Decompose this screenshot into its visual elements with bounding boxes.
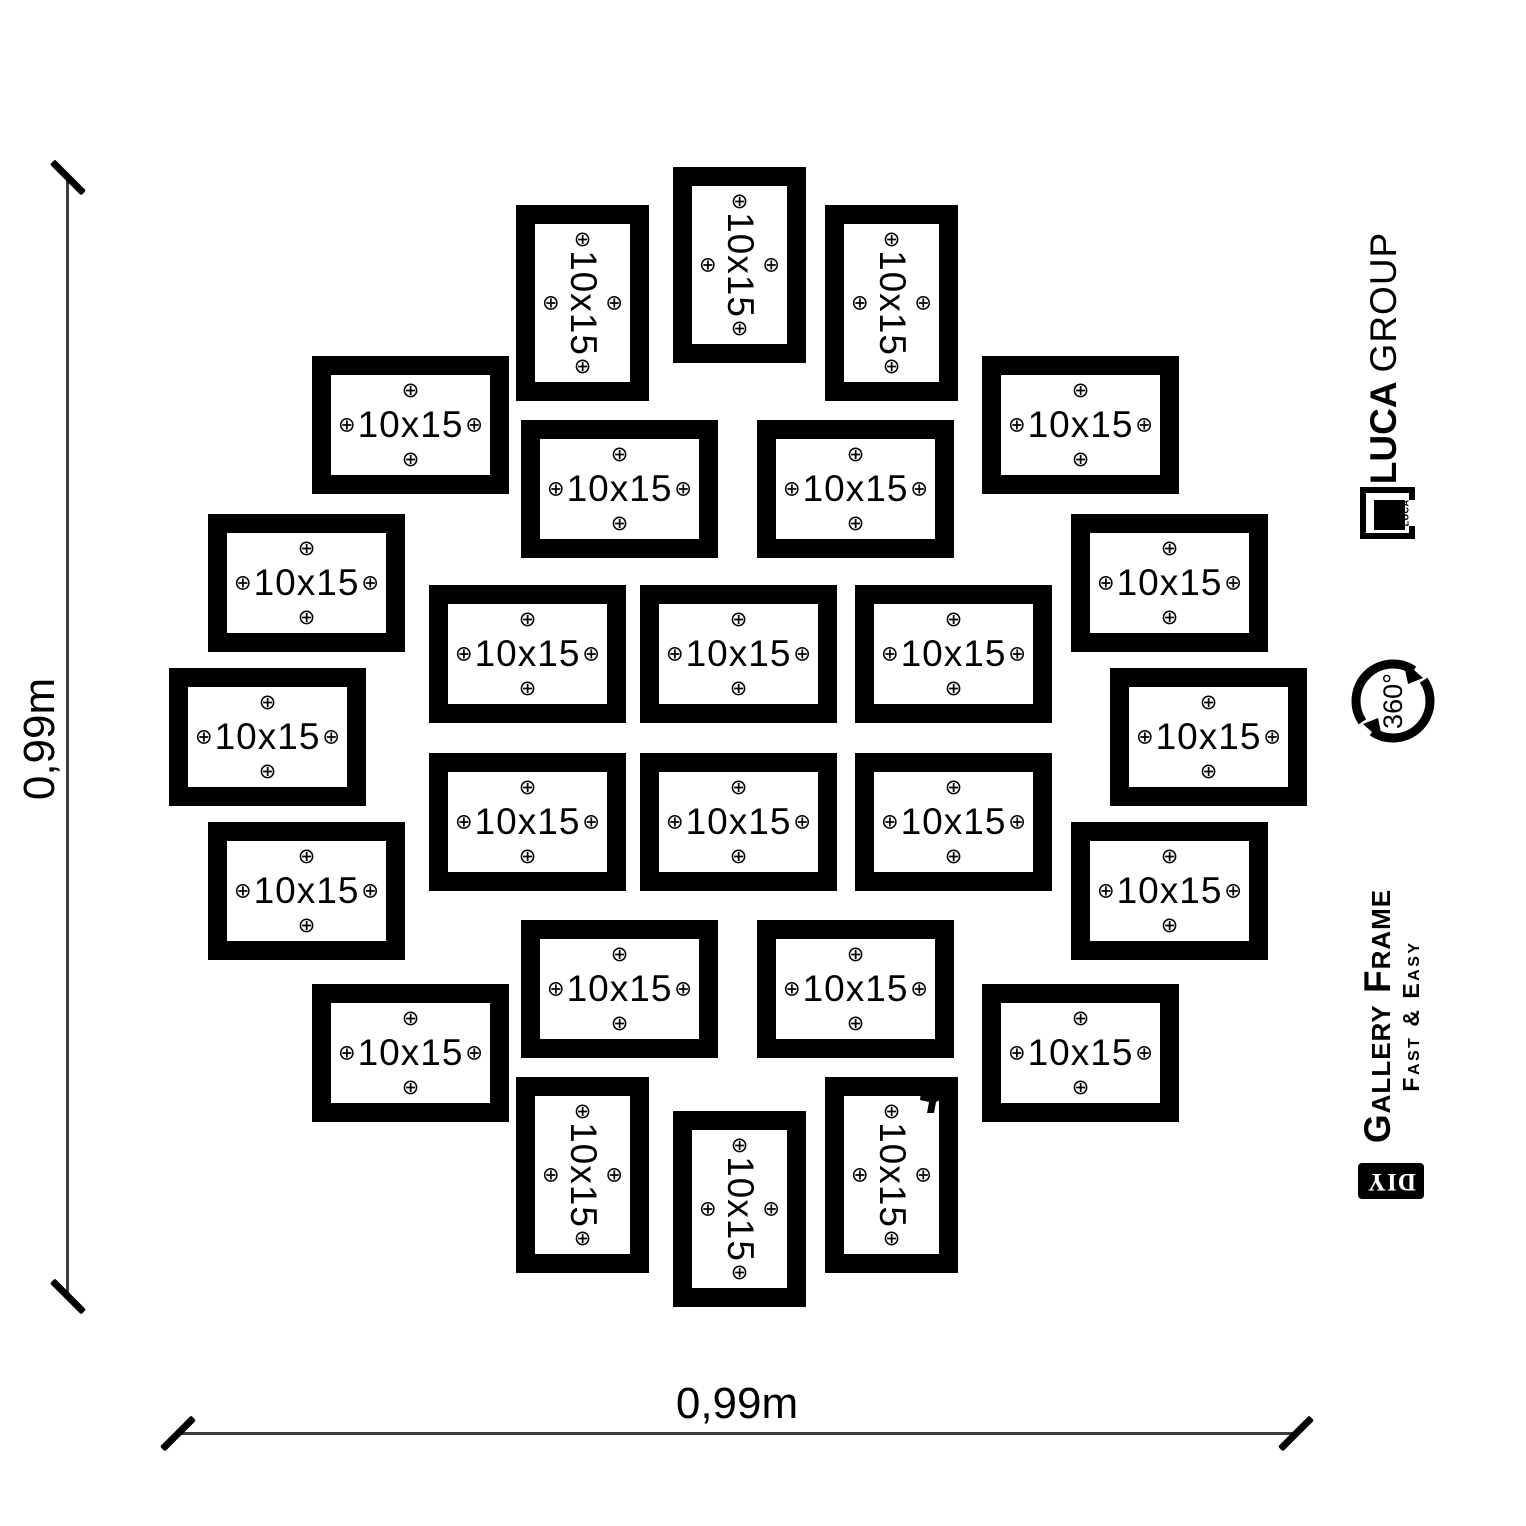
photo-frame-portrait: ⊕⊕⊕⊕10x15: [516, 1077, 649, 1273]
screw-mount-icon: ⊕: [1161, 915, 1179, 936]
screw-mount-icon: ⊕: [402, 380, 420, 401]
screw-mount-icon: ⊕: [542, 293, 560, 314]
photo-frame-landscape: ⊕⊕⊕⊕10x15: [521, 420, 718, 558]
vertical-dimension-line: [66, 176, 69, 1296]
screw-mount-icon: ⊕: [783, 479, 801, 500]
screw-mount-icon: ⊕: [731, 318, 749, 339]
screw-mount-icon: ⊕: [730, 609, 748, 630]
photo-frame-landscape: ⊕⊕⊕⊕10x15: [169, 668, 366, 806]
screw-mount-icon: ⊕: [910, 479, 928, 500]
screw-mount-icon: ⊕: [881, 812, 899, 833]
luca-logo: LUCA: [1360, 487, 1415, 539]
screw-mount-icon: ⊕: [234, 881, 252, 902]
screw-mount-icon: ⊕: [731, 1135, 749, 1156]
screw-mount-icon: ⊕: [1224, 881, 1242, 902]
screw-mount-icon: ⊕: [1263, 727, 1281, 748]
screw-mount-icon: ⊕: [847, 444, 865, 465]
screw-mount-icon: ⊕: [730, 678, 748, 699]
photo-frame-landscape: ⊕⊕⊕⊕10x15: [312, 984, 509, 1122]
screw-mount-icon: ⊕: [1008, 644, 1026, 665]
photo-frame-landscape: ⊕⊕⊕⊕10x15: [429, 753, 626, 891]
frame-size-label: 10x15: [686, 801, 792, 843]
frame-size-label: 10x15: [719, 212, 761, 318]
screw-mount-icon: ⊕: [234, 573, 252, 594]
screw-mount-icon: ⊕: [298, 538, 316, 559]
frame-size-label: 10x15: [254, 870, 360, 912]
screw-mount-icon: ⊕: [195, 727, 213, 748]
screw-mount-icon: ⊕: [945, 777, 963, 798]
screw-mount-icon: ⊕: [582, 644, 600, 665]
screw-mount-icon: ⊕: [259, 761, 277, 782]
screw-mount-icon: ⊕: [338, 415, 356, 436]
screw-mount-icon: ⊕: [1072, 380, 1090, 401]
screw-mount-icon: ⊕: [793, 644, 811, 665]
horizontal-dimension-line: [178, 1432, 1296, 1435]
width-dimension-label: 0,99m: [676, 1379, 798, 1429]
frame-size-label: 10x15: [803, 968, 909, 1010]
diy-badge: DIY: [1358, 1163, 1424, 1199]
screw-mount-icon: ⊕: [547, 479, 565, 500]
screw-mount-icon: ⊕: [361, 573, 379, 594]
screw-mount-icon: ⊕: [666, 644, 684, 665]
frame-size-label: 10x15: [803, 468, 909, 510]
screw-mount-icon: ⊕: [731, 1262, 749, 1283]
frame-size-label: 10x15: [901, 633, 1007, 675]
screw-mount-icon: ⊕: [298, 915, 316, 936]
screw-mount-icon: ⊕: [574, 1101, 592, 1122]
screw-mount-icon: ⊕: [322, 727, 340, 748]
height-dimension-label: 0,99m: [15, 678, 65, 800]
screw-mount-icon: ⊕: [666, 812, 684, 833]
screw-mount-icon: ⊕: [1072, 1077, 1090, 1098]
screw-mount-icon: ⊕: [1135, 1043, 1153, 1064]
photo-frame-landscape: ⊕⊕⊕⊕10x15: [757, 420, 954, 558]
photo-frame-portrait: ⊕⊕⊕⊕10x15: [673, 167, 806, 363]
screw-mount-icon: ⊕: [674, 479, 692, 500]
screw-mount-icon: ⊕: [298, 607, 316, 628]
screw-mount-icon: ⊕: [731, 191, 749, 212]
screw-mount-icon: ⊕: [730, 846, 748, 867]
screw-mount-icon: ⊕: [945, 609, 963, 630]
screw-mount-icon: ⊕: [847, 1013, 865, 1034]
screw-mount-icon: ⊕: [605, 1165, 623, 1186]
screw-mount-icon: ⊕: [1097, 573, 1115, 594]
screw-mount-icon: ⊕: [338, 1043, 356, 1064]
frame-size-label: 10x15: [562, 1122, 604, 1228]
print-smudge-artifact: [901, 1085, 947, 1117]
screw-mount-icon: ⊕: [1135, 415, 1153, 436]
screw-mount-icon: ⊕: [1008, 812, 1026, 833]
screw-mount-icon: ⊕: [611, 944, 629, 965]
photo-frame-landscape: ⊕⊕⊕⊕10x15: [640, 753, 837, 891]
frame-size-label: 10x15: [562, 250, 604, 356]
screw-mount-icon: ⊕: [1161, 607, 1179, 628]
brand-wordmark: LUCAGROUP: [1363, 232, 1405, 484]
photo-frame-landscape: ⊕⊕⊕⊕10x15: [208, 822, 405, 960]
photo-frame-portrait: ⊕⊕⊕⊕10x15: [673, 1111, 806, 1307]
screw-mount-icon: ⊕: [611, 513, 629, 534]
screw-mount-icon: ⊕: [1008, 415, 1026, 436]
screw-mount-icon: ⊕: [259, 692, 277, 713]
photo-frame-landscape: ⊕⊕⊕⊕10x15: [1071, 514, 1268, 652]
frame-size-label: 10x15: [1117, 870, 1223, 912]
screw-mount-icon: ⊕: [547, 979, 565, 1000]
screw-mount-icon: ⊕: [851, 293, 869, 314]
screw-mount-icon: ⊕: [945, 846, 963, 867]
screw-mount-icon: ⊕: [605, 293, 623, 314]
screw-mount-icon: ⊕: [465, 1043, 483, 1064]
screw-mount-icon: ⊕: [455, 644, 473, 665]
screw-mount-icon: ⊕: [298, 846, 316, 867]
product-title: Gallery Frame: [1359, 889, 1398, 1143]
photo-frame-landscape: ⊕⊕⊕⊕10x15: [757, 920, 954, 1058]
screw-mount-icon: ⊕: [699, 255, 717, 276]
screw-mount-icon: ⊕: [1161, 538, 1179, 559]
screw-mount-icon: ⊕: [730, 777, 748, 798]
luca-logo-caption: LUCA: [1401, 500, 1411, 527]
frame-size-label: 10x15: [358, 404, 464, 446]
screw-mount-icon: ⊕: [881, 644, 899, 665]
photo-frame-landscape: ⊕⊕⊕⊕10x15: [521, 920, 718, 1058]
screw-mount-icon: ⊕: [674, 979, 692, 1000]
screw-mount-icon: ⊕: [883, 1228, 901, 1249]
screw-mount-icon: ⊕: [914, 293, 932, 314]
screw-mount-icon: ⊕: [519, 609, 537, 630]
frame-size-label: 10x15: [719, 1156, 761, 1262]
screw-mount-icon: ⊕: [519, 846, 537, 867]
screw-mount-icon: ⊕: [574, 356, 592, 377]
screw-mount-icon: ⊕: [1136, 727, 1154, 748]
photo-frame-landscape: ⊕⊕⊕⊕10x15: [640, 585, 837, 723]
frame-size-label: 10x15: [1117, 562, 1223, 604]
photo-frame-landscape: ⊕⊕⊕⊕10x15: [1071, 822, 1268, 960]
frame-size-label: 10x15: [871, 250, 913, 356]
frame-size-label: 10x15: [475, 801, 581, 843]
photo-frame-portrait: ⊕⊕⊕⊕10x15: [825, 205, 958, 401]
screw-mount-icon: ⊕: [883, 1101, 901, 1122]
screw-mount-icon: ⊕: [1200, 761, 1218, 782]
screw-mount-icon: ⊕: [1200, 692, 1218, 713]
frame-size-label: 10x15: [1028, 1032, 1134, 1074]
screw-mount-icon: ⊕: [465, 415, 483, 436]
frame-size-label: 10x15: [254, 562, 360, 604]
screw-mount-icon: ⊕: [851, 1165, 869, 1186]
screw-mount-icon: ⊕: [361, 881, 379, 902]
photo-frame-portrait: ⊕⊕⊕⊕10x15: [516, 205, 649, 401]
photo-frame-landscape: ⊕⊕⊕⊕10x15: [312, 356, 509, 494]
frame-size-label: 10x15: [1156, 716, 1262, 758]
photo-frame-landscape: ⊕⊕⊕⊕10x15: [982, 356, 1179, 494]
brand-group: GROUP: [1363, 232, 1404, 373]
frame-size-label: 10x15: [567, 468, 673, 510]
gallery-frame-layout-diagram: ⊕⊕⊕⊕10x15⊕⊕⊕⊕10x15⊕⊕⊕⊕10x15⊕⊕⊕⊕10x15⊕⊕⊕⊕…: [0, 0, 1526, 1526]
photo-frame-landscape: ⊕⊕⊕⊕10x15: [208, 514, 405, 652]
screw-mount-icon: ⊕: [762, 255, 780, 276]
screw-mount-icon: ⊕: [883, 356, 901, 377]
screw-mount-icon: ⊕: [910, 979, 928, 1000]
screw-mount-icon: ⊕: [402, 1008, 420, 1029]
screw-mount-icon: ⊕: [1072, 1008, 1090, 1029]
frame-size-label: 10x15: [215, 716, 321, 758]
screw-mount-icon: ⊕: [847, 513, 865, 534]
screw-mount-icon: ⊕: [1224, 573, 1242, 594]
screw-mount-icon: ⊕: [1161, 846, 1179, 867]
screw-mount-icon: ⊕: [542, 1165, 560, 1186]
screw-mount-icon: ⊕: [1072, 449, 1090, 470]
screw-mount-icon: ⊕: [402, 449, 420, 470]
screw-mount-icon: ⊕: [519, 777, 537, 798]
screw-mount-icon: ⊕: [762, 1199, 780, 1220]
screw-mount-icon: ⊕: [519, 678, 537, 699]
photo-frame-landscape: ⊕⊕⊕⊕10x15: [855, 753, 1052, 891]
screw-mount-icon: ⊕: [783, 979, 801, 1000]
screw-mount-icon: ⊕: [574, 229, 592, 250]
photo-frame-landscape: ⊕⊕⊕⊕10x15: [855, 585, 1052, 723]
screw-mount-icon: ⊕: [883, 229, 901, 250]
frame-size-label: 10x15: [871, 1122, 913, 1228]
screw-mount-icon: ⊕: [455, 812, 473, 833]
product-title-block: Gallery Frame Fast & Easy: [1359, 889, 1425, 1143]
screw-mount-icon: ⊕: [945, 678, 963, 699]
rotate-360-icon: 360°: [1345, 653, 1441, 749]
screw-mount-icon: ⊕: [574, 1228, 592, 1249]
frame-size-label: 10x15: [475, 633, 581, 675]
photo-frame-landscape: ⊕⊕⊕⊕10x15: [1110, 668, 1307, 806]
frame-size-label: 10x15: [686, 633, 792, 675]
diy-label: DIY: [1367, 1169, 1416, 1194]
frame-size-label: 10x15: [901, 801, 1007, 843]
photo-frame-landscape: ⊕⊕⊕⊕10x15: [429, 585, 626, 723]
screw-mount-icon: ⊕: [582, 812, 600, 833]
screw-mount-icon: ⊕: [847, 944, 865, 965]
screw-mount-icon: ⊕: [914, 1165, 932, 1186]
screw-mount-icon: ⊕: [1008, 1043, 1026, 1064]
rotation-degrees-label: 360°: [1378, 673, 1408, 729]
product-subtitle: Fast & Easy: [1398, 889, 1425, 1143]
screw-mount-icon: ⊕: [611, 1013, 629, 1034]
screw-mount-icon: ⊕: [611, 444, 629, 465]
frame-size-label: 10x15: [358, 1032, 464, 1074]
brand-name: LUCA: [1363, 381, 1404, 484]
screw-mount-icon: ⊕: [1097, 881, 1115, 902]
screw-mount-icon: ⊕: [699, 1199, 717, 1220]
frame-size-label: 10x15: [567, 968, 673, 1010]
photo-frame-landscape: ⊕⊕⊕⊕10x15: [982, 984, 1179, 1122]
screw-mount-icon: ⊕: [793, 812, 811, 833]
screw-mount-icon: ⊕: [402, 1077, 420, 1098]
frame-size-label: 10x15: [1028, 404, 1134, 446]
